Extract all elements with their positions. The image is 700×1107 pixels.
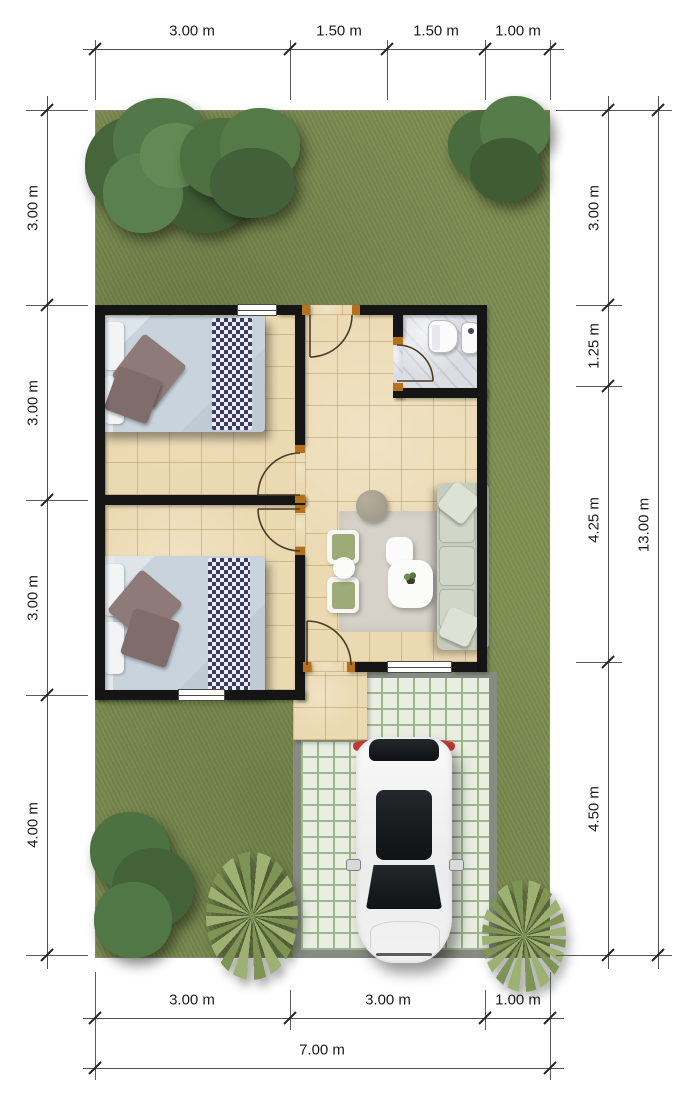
- extension-line: [26, 955, 88, 956]
- round-pouf: [356, 490, 388, 522]
- wall-top: [352, 305, 487, 315]
- dim-label-bottom-1: 3.00 m: [169, 992, 215, 1009]
- toilet: [428, 320, 458, 353]
- wall-left: [95, 315, 105, 700]
- car-rear-window: [369, 739, 439, 761]
- door-frame: [393, 383, 403, 391]
- dim-label-right-1: 3.00 m: [586, 185, 603, 231]
- door-frame: [303, 662, 311, 672]
- door-frame: [295, 547, 305, 555]
- dimension-line-left: [47, 96, 48, 969]
- window-living: [387, 661, 452, 673]
- dim-label-bottom-3: 1.00 m: [495, 992, 541, 1009]
- car-hood-line: [370, 921, 440, 948]
- door-frame: [295, 445, 305, 453]
- wall-bedroom-bottom: [95, 690, 178, 700]
- dim-label-left-2: 3.00 m: [25, 380, 42, 426]
- table-plant: [403, 572, 417, 584]
- wall-bathroom-left: [393, 315, 403, 337]
- wall-bathroom-bottom: [393, 388, 487, 398]
- dim-label-left-3: 3.00 m: [25, 575, 42, 621]
- dim-label-right-2: 1.25 m: [586, 323, 603, 369]
- door-frame: [295, 505, 305, 513]
- tree-canopy-back-mid: [180, 108, 305, 223]
- car-windshield: [366, 865, 442, 909]
- extension-line: [26, 500, 88, 501]
- dim-label-bottom-total: 7.00 m: [299, 1042, 345, 1059]
- bedroom-1-door-opening: [295, 453, 305, 495]
- palm-plant-front-left: [206, 852, 298, 980]
- dimension-line-right-total: [658, 96, 659, 969]
- bedroom-2-door-opening: [295, 513, 305, 547]
- sofa-cushion: [439, 546, 475, 586]
- floor-plan-canvas: 3.00 m 1.50 m 1.50 m 1.00 m 3.00 m 3.00 …: [0, 0, 700, 1107]
- door-frame: [347, 662, 355, 672]
- back-door-threshold: [310, 305, 352, 315]
- checkered-blanket: [212, 318, 252, 430]
- toilet-cistern: [432, 325, 440, 350]
- side-table: [333, 557, 355, 579]
- dimension-line-right: [608, 96, 609, 969]
- dim-label-right-3: 4.25 m: [586, 497, 603, 543]
- car-front-grille: [376, 953, 432, 956]
- extension-line: [26, 305, 88, 306]
- car: [352, 735, 456, 965]
- bed-2: [100, 556, 265, 694]
- door-frame: [295, 495, 305, 503]
- tree-canopy-back-right: [448, 96, 552, 208]
- checkered-blanket: [208, 558, 250, 692]
- wall-top: [95, 305, 237, 315]
- wall-between-bedrooms: [105, 495, 305, 505]
- extension-line: [485, 990, 486, 1030]
- chair-cushion: [332, 582, 355, 609]
- extension-line: [26, 695, 88, 696]
- dim-label-top-1: 3.00 m: [169, 23, 215, 40]
- extension-line: [26, 110, 88, 111]
- bed-1: [100, 316, 265, 432]
- bathroom-door-opening: [393, 345, 403, 383]
- dim-label-top-3: 1.50 m: [413, 23, 459, 40]
- bush-front-left: [90, 812, 202, 964]
- car-mirror-left: [346, 859, 361, 871]
- door-frame: [352, 305, 360, 315]
- armchair-2: [327, 577, 359, 613]
- wall-front: [452, 662, 477, 672]
- front-door-threshold: [311, 662, 347, 672]
- dim-label-left-4: 4.00 m: [25, 802, 42, 848]
- car-sunroof: [376, 790, 432, 860]
- dimension-line-top: [83, 49, 564, 50]
- dimension-line-bottom-total: [83, 1068, 564, 1069]
- faucet: [468, 328, 474, 334]
- dim-label-left-1: 3.00 m: [25, 185, 42, 231]
- dim-label-top-2: 1.50 m: [316, 23, 362, 40]
- dim-label-bottom-2: 3.00 m: [365, 992, 411, 1009]
- door-frame: [393, 337, 403, 345]
- coffee-table-large: [388, 560, 433, 608]
- car-mirror-right: [449, 859, 464, 871]
- dim-label-top-4: 1.00 m: [495, 23, 541, 40]
- dim-label-right-4: 4.50 m: [586, 786, 603, 832]
- palm-plant-front-right: [482, 880, 566, 992]
- window-bedroom-2: [178, 689, 225, 701]
- door-frame: [302, 305, 310, 315]
- dim-label-right-total: 13.00 m: [636, 498, 653, 552]
- extension-line: [576, 386, 622, 387]
- window-back: [237, 304, 277, 316]
- extension-line: [290, 990, 291, 1030]
- wall-bedroom-hall: [295, 315, 305, 445]
- extension-line: [576, 662, 622, 663]
- wall-bedroom-bottom: [225, 690, 305, 700]
- extension-line: [576, 305, 622, 306]
- wall-east: [477, 315, 487, 672]
- wall-bedroom-hall: [295, 555, 305, 700]
- dimension-line-bottom: [83, 1018, 564, 1019]
